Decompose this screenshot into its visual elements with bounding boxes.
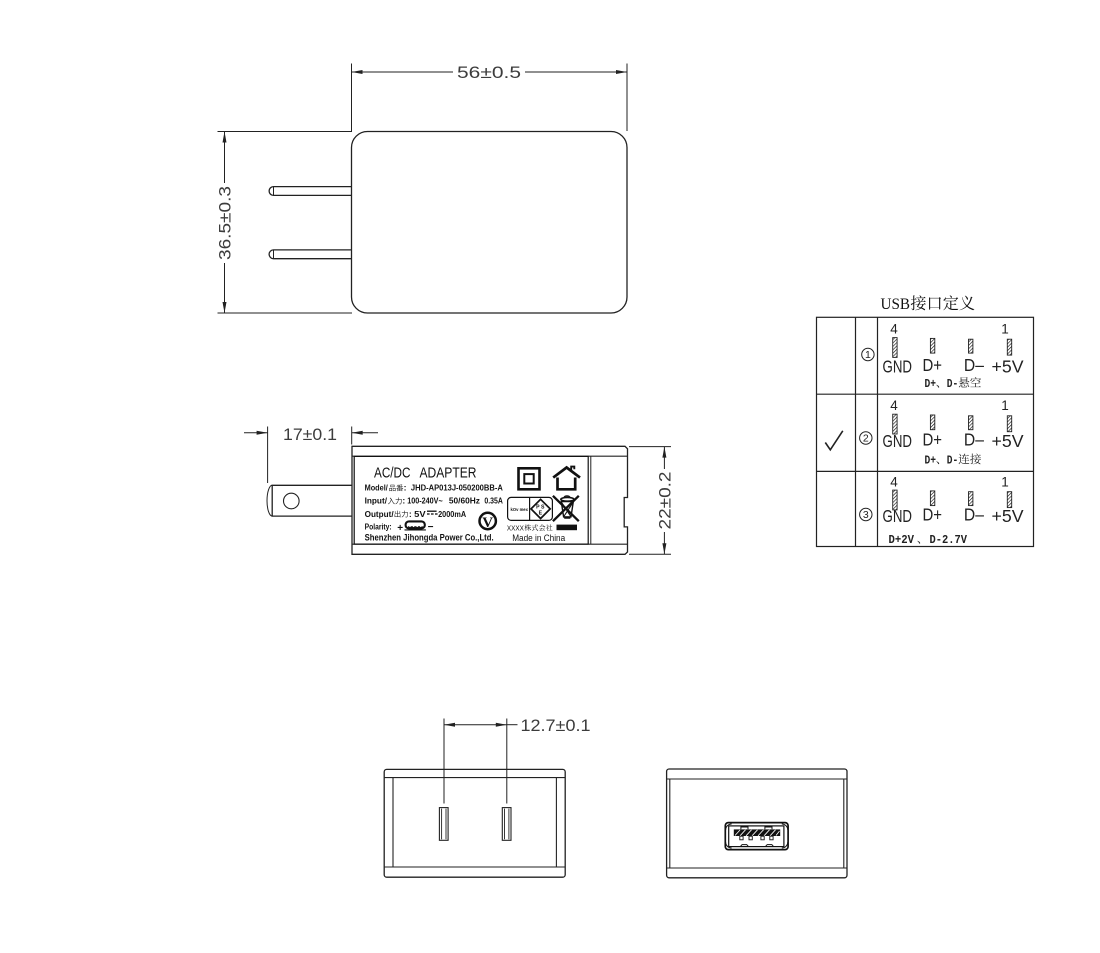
svg-text:kOv mex: kOv mex bbox=[511, 507, 529, 512]
svg-text:GND: GND bbox=[883, 506, 913, 526]
svg-text:56±0.5: 56±0.5 bbox=[457, 63, 521, 82]
svg-text:5V: 5V bbox=[414, 509, 426, 519]
svg-text:Made in China: Made in China bbox=[512, 533, 566, 544]
svg-text:D+2V: D+2V bbox=[889, 533, 915, 547]
svg-text::: : bbox=[402, 496, 405, 506]
svg-text::: : bbox=[409, 509, 412, 519]
svg-text:2: 2 bbox=[863, 433, 869, 445]
svg-text:D-2.7V: D-2.7V bbox=[930, 533, 968, 547]
svg-text:36.5±0.3: 36.5±0.3 bbox=[216, 186, 235, 260]
svg-text:Input/: Input/ bbox=[365, 496, 388, 506]
svg-text:4: 4 bbox=[890, 475, 898, 490]
svg-text:Shenzhen Jihongda Power Co.,Lt: Shenzhen Jihongda Power Co.,Ltd. bbox=[365, 531, 494, 542]
svg-text:GND: GND bbox=[883, 357, 913, 377]
svg-text:+5V: +5V bbox=[992, 431, 1024, 451]
svg-text:D+: D+ bbox=[923, 430, 943, 450]
svg-text:D–: D– bbox=[964, 430, 984, 450]
svg-text:D+: D+ bbox=[923, 355, 943, 375]
svg-text:50/60Hz: 50/60Hz bbox=[449, 496, 480, 506]
svg-text:22±0.2: 22±0.2 bbox=[655, 472, 674, 530]
svg-text:0.35A: 0.35A bbox=[484, 496, 503, 506]
svg-text:100-240V~: 100-240V~ bbox=[407, 496, 443, 506]
svg-text:D+: D+ bbox=[925, 453, 937, 467]
svg-text:ADAPTER: ADAPTER bbox=[420, 466, 477, 482]
svg-text:2000mA: 2000mA bbox=[438, 509, 466, 519]
svg-text:1: 1 bbox=[1001, 398, 1009, 413]
svg-text:XXXX: XXXX bbox=[507, 523, 524, 532]
svg-text:1: 1 bbox=[1001, 475, 1009, 490]
svg-text:3: 3 bbox=[863, 509, 869, 521]
svg-text:E: E bbox=[539, 510, 543, 516]
svg-text:4: 4 bbox=[890, 322, 898, 337]
svg-text:Polarity:: Polarity: bbox=[365, 522, 392, 532]
svg-text:V: V bbox=[482, 515, 493, 531]
svg-text:D-: D- bbox=[947, 377, 959, 391]
svg-text:D+: D+ bbox=[925, 377, 937, 391]
svg-text:1: 1 bbox=[865, 349, 871, 361]
svg-text:GND: GND bbox=[883, 431, 913, 451]
svg-text:Output/: Output/ bbox=[365, 509, 395, 519]
svg-text:12.7±0.1: 12.7±0.1 bbox=[521, 716, 591, 735]
svg-text:D–: D– bbox=[964, 355, 984, 375]
svg-text:17±0.1: 17±0.1 bbox=[283, 425, 337, 444]
svg-text:USB: USB bbox=[881, 296, 911, 313]
svg-text:Model/: Model/ bbox=[365, 483, 389, 493]
svg-text:D+: D+ bbox=[923, 504, 943, 524]
svg-text:1: 1 bbox=[1001, 322, 1009, 337]
svg-text:+5V: +5V bbox=[992, 357, 1024, 377]
svg-text:D-: D- bbox=[947, 453, 959, 467]
svg-text:+5V: +5V bbox=[992, 506, 1024, 526]
svg-text:AC/DC: AC/DC bbox=[374, 466, 411, 482]
svg-text:JHD-AP013J-050200BB-A: JHD-AP013J-050200BB-A bbox=[411, 483, 503, 493]
svg-text:D–: D– bbox=[964, 504, 984, 524]
svg-text:4: 4 bbox=[890, 398, 898, 413]
svg-text::: : bbox=[404, 483, 407, 493]
